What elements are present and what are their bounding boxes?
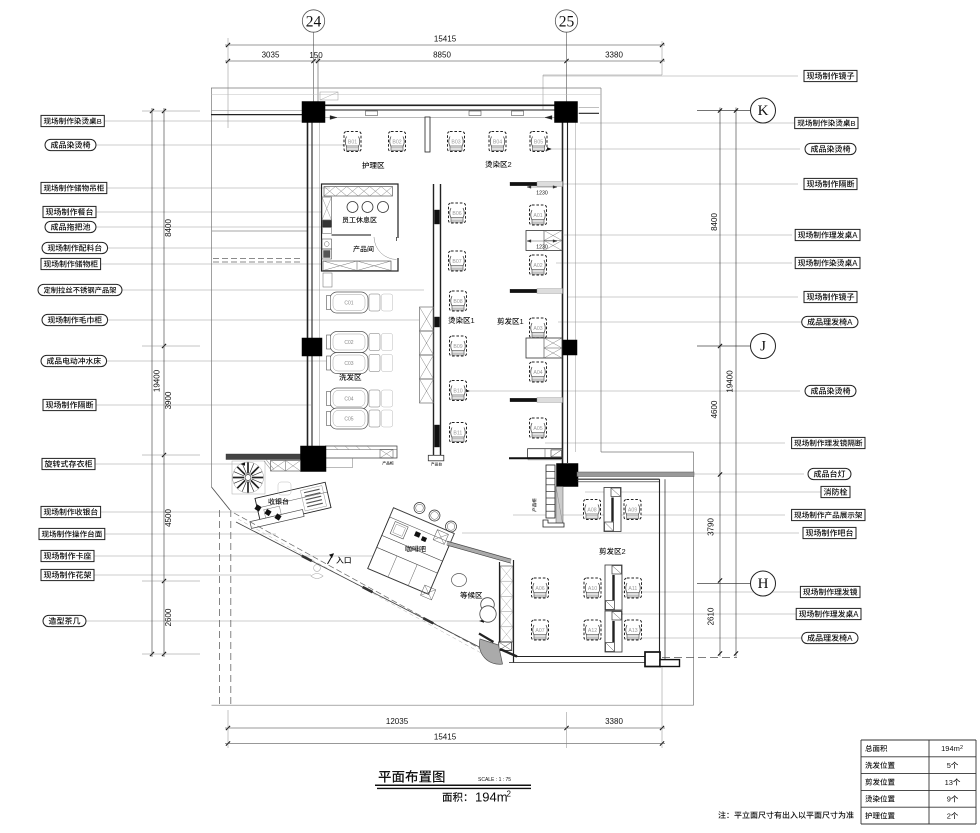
- svg-text:3790: 3790: [707, 518, 716, 536]
- svg-text:A: A: [852, 259, 858, 268]
- svg-text:B: B: [851, 119, 856, 128]
- svg-text:B09: B09: [453, 344, 462, 350]
- svg-text:A13: A13: [628, 628, 637, 634]
- svg-text:13: 13: [945, 778, 953, 787]
- svg-text:2600: 2600: [164, 608, 173, 626]
- svg-text:B: B: [97, 117, 102, 126]
- svg-text:A01: A01: [533, 213, 542, 219]
- svg-text:24: 24: [306, 14, 322, 31]
- svg-text:SCALE : 1 : 75: SCALE : 1 : 75: [478, 777, 511, 783]
- svg-text:1230: 1230: [536, 245, 548, 251]
- svg-text:B01: B01: [348, 140, 357, 146]
- svg-text:B05: B05: [534, 140, 543, 146]
- svg-text:150: 150: [309, 51, 323, 60]
- svg-text:9: 9: [947, 795, 951, 804]
- svg-text:A: A: [847, 318, 853, 327]
- svg-text:B07: B07: [452, 259, 461, 265]
- svg-text:2: 2: [947, 811, 951, 820]
- svg-text:1230: 1230: [536, 191, 548, 197]
- svg-text:A12: A12: [588, 628, 597, 634]
- svg-text:4500: 4500: [164, 509, 173, 527]
- svg-text:A10: A10: [588, 586, 597, 592]
- svg-text:3035: 3035: [262, 51, 280, 60]
- svg-text:A06: A06: [535, 586, 544, 592]
- svg-text:1: 1: [471, 316, 475, 325]
- svg-text:5: 5: [947, 761, 951, 770]
- svg-text:2610: 2610: [707, 607, 716, 625]
- svg-text:19400: 19400: [153, 369, 162, 392]
- svg-text:A05: A05: [533, 426, 542, 432]
- svg-text:B11: B11: [453, 431, 462, 437]
- svg-text:C02: C02: [344, 340, 353, 346]
- svg-text:12035: 12035: [386, 717, 409, 726]
- svg-text:C01: C01: [344, 301, 353, 307]
- svg-text:25: 25: [559, 14, 575, 31]
- svg-text:C05: C05: [344, 417, 353, 423]
- svg-text:A08: A08: [587, 508, 596, 514]
- svg-text:J: J: [760, 339, 766, 355]
- svg-text:8850: 8850: [433, 51, 451, 60]
- svg-text:2: 2: [622, 547, 626, 556]
- svg-text:H: H: [758, 576, 769, 592]
- svg-text:19400: 19400: [726, 370, 735, 393]
- svg-text:B02: B02: [392, 140, 401, 146]
- svg-text:A11: A11: [628, 586, 637, 592]
- svg-text:8400: 8400: [164, 219, 173, 237]
- svg-text:A02: A02: [533, 263, 542, 269]
- svg-text:A: A: [852, 231, 858, 240]
- svg-text:15415: 15415: [434, 35, 457, 44]
- svg-text:B03: B03: [451, 140, 460, 146]
- svg-text:3380: 3380: [605, 717, 623, 726]
- svg-text:B08: B08: [453, 299, 462, 305]
- svg-text:2: 2: [507, 790, 512, 799]
- svg-text:15415: 15415: [434, 733, 457, 742]
- svg-text:2: 2: [960, 745, 963, 751]
- svg-text:A04: A04: [533, 370, 542, 376]
- svg-text:A09: A09: [628, 508, 637, 514]
- svg-text:B10: B10: [453, 389, 462, 395]
- svg-text:B04: B04: [493, 140, 502, 146]
- svg-text:3380: 3380: [605, 51, 623, 60]
- svg-text:B06: B06: [452, 211, 461, 217]
- svg-text:4600: 4600: [710, 400, 719, 418]
- svg-text:2: 2: [508, 160, 512, 169]
- svg-text:1: 1: [520, 317, 524, 326]
- svg-text:A: A: [853, 610, 859, 619]
- svg-text:194m: 194m: [475, 790, 508, 805]
- svg-text:A07: A07: [535, 628, 544, 634]
- svg-text:3900: 3900: [164, 391, 173, 409]
- svg-text:K: K: [758, 103, 769, 119]
- svg-text:C04: C04: [344, 397, 353, 403]
- svg-text:8400: 8400: [710, 213, 719, 231]
- svg-text:A: A: [847, 634, 853, 643]
- svg-text:194m: 194m: [941, 744, 960, 753]
- svg-text:C03: C03: [344, 361, 353, 367]
- svg-text:A03: A03: [533, 326, 542, 332]
